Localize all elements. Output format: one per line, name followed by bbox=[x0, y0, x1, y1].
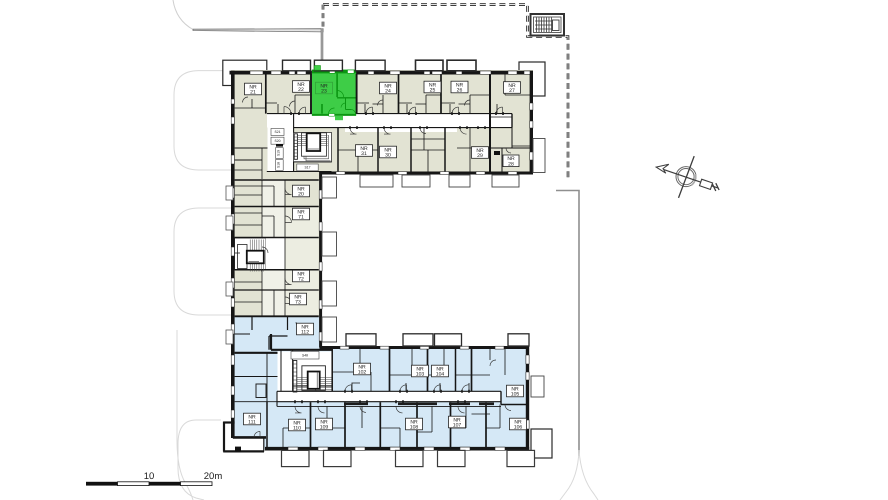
svg-text:S20: S20 bbox=[274, 139, 280, 143]
svg-text:71: 71 bbox=[298, 215, 304, 221]
svg-text:73: 73 bbox=[295, 300, 301, 306]
svg-text:72: 72 bbox=[298, 277, 304, 283]
svg-text:103: 103 bbox=[416, 372, 425, 378]
svg-text:23: 23 bbox=[321, 89, 327, 95]
svg-text:105: 105 bbox=[511, 392, 520, 398]
svg-text:25: 25 bbox=[430, 88, 436, 94]
svg-text:106: 106 bbox=[514, 425, 523, 431]
svg-text:108: 108 bbox=[410, 425, 419, 431]
svg-text:110: 110 bbox=[293, 426, 301, 432]
svg-text:109: 109 bbox=[320, 425, 329, 431]
svg-text:22: 22 bbox=[298, 87, 304, 93]
svg-text:S48: S48 bbox=[302, 353, 308, 357]
svg-text:26: 26 bbox=[457, 88, 463, 94]
svg-text:28: 28 bbox=[508, 161, 514, 167]
svg-text:24: 24 bbox=[385, 89, 391, 95]
svg-text:104: 104 bbox=[436, 372, 445, 378]
svg-text:107: 107 bbox=[453, 423, 462, 429]
svg-text:102: 102 bbox=[358, 370, 367, 376]
svg-text:29: 29 bbox=[477, 153, 483, 159]
svg-text:20m: 20m bbox=[204, 471, 223, 482]
svg-text:27: 27 bbox=[509, 88, 515, 94]
svg-text:S19: S19 bbox=[276, 150, 280, 156]
svg-text:20: 20 bbox=[298, 192, 304, 198]
svg-text:21: 21 bbox=[250, 90, 256, 96]
svg-text:31: 31 bbox=[361, 151, 367, 157]
svg-text:S17: S17 bbox=[304, 166, 310, 170]
svg-text:10: 10 bbox=[144, 471, 155, 482]
svg-text:S21: S21 bbox=[274, 130, 280, 134]
svg-text:111: 111 bbox=[248, 420, 256, 426]
svg-text:112: 112 bbox=[301, 330, 309, 336]
svg-text:S18: S18 bbox=[276, 162, 280, 168]
svg-text:30: 30 bbox=[385, 153, 391, 159]
